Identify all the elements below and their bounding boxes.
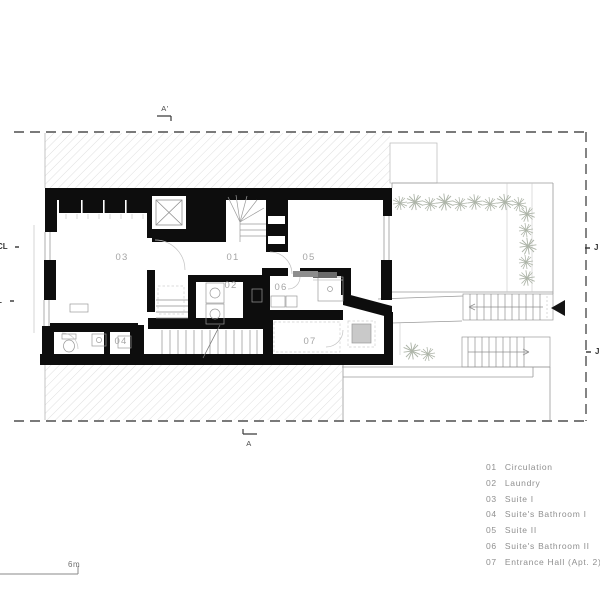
- svg-text:6m: 6m: [68, 560, 80, 569]
- svg-text:A: A: [246, 439, 252, 448]
- legend-code: 05: [486, 525, 497, 535]
- section-marker-top: A': [157, 104, 171, 121]
- room-label-04: 04: [115, 336, 128, 347]
- neighbor-hatch-top: [45, 133, 437, 188]
- legend-code: 02: [486, 478, 497, 488]
- room-label-06: 06: [275, 282, 288, 293]
- legend-code: 01: [486, 462, 497, 472]
- exterior-stair-upper: [463, 294, 553, 320]
- legend-item-03: 03Suite I: [486, 494, 600, 510]
- floor-plan-page: A' A CL L J J 03 01 05 02 06 04 07 6m 01…: [0, 0, 600, 600]
- legend-item-07: 07Entrance Hall (Apt. 2): [486, 557, 600, 573]
- legend-name: Entrance Hall (Apt. 2): [505, 557, 600, 567]
- exterior-stair-lower: [462, 337, 550, 367]
- legend-item-01: 01Circulation: [486, 462, 600, 478]
- room-label-05: 05: [303, 252, 316, 263]
- legend-name: Circulation: [505, 462, 553, 472]
- legend-name: Suite II: [505, 525, 537, 535]
- section-marker-bottom: A: [243, 429, 257, 448]
- scale-bar: 6m: [0, 560, 80, 574]
- legend: 01Circulation 02Laundry 03Suite I 04Suit…: [486, 462, 600, 573]
- legend-item-06: 06Suite's Bathroom II: [486, 541, 600, 557]
- skylight-square: [352, 324, 371, 343]
- stair-direction-arrow-right: [468, 349, 529, 355]
- svg-text:CL: CL: [0, 242, 8, 251]
- stair-direction-arrow-left: [469, 304, 543, 310]
- legend-item-04: 04Suite's Bathroom I: [486, 509, 600, 525]
- svg-text:J: J: [595, 347, 599, 356]
- legend-code: 07: [486, 557, 497, 567]
- neighbor-hatch-bottom: [45, 363, 342, 420]
- svg-text:J: J: [594, 243, 598, 252]
- legend-code: 04: [486, 509, 497, 519]
- winder-stair: [228, 195, 266, 242]
- legend-name: Suite's Bathroom II: [505, 541, 590, 551]
- room-label-03: 03: [116, 252, 129, 263]
- edge-labels: CL L J J: [0, 242, 599, 356]
- legend-name: Suite I: [505, 494, 534, 504]
- room-label-07: 07: [304, 336, 317, 347]
- legend-name: Suite's Bathroom I: [505, 509, 587, 519]
- room-label-02: 02: [225, 280, 238, 291]
- legend-code: 06: [486, 541, 497, 551]
- vanity-06: [293, 271, 318, 277]
- svg-text:A': A': [161, 104, 169, 113]
- svg-text:L: L: [0, 296, 2, 305]
- vegetation: [393, 194, 536, 361]
- legend-item-02: 02Laundry: [486, 478, 600, 494]
- legend-code: 03: [486, 494, 497, 504]
- room-label-01: 01: [227, 252, 240, 263]
- legend-item-05: 05Suite II: [486, 525, 600, 541]
- legend-name: Laundry: [505, 478, 541, 488]
